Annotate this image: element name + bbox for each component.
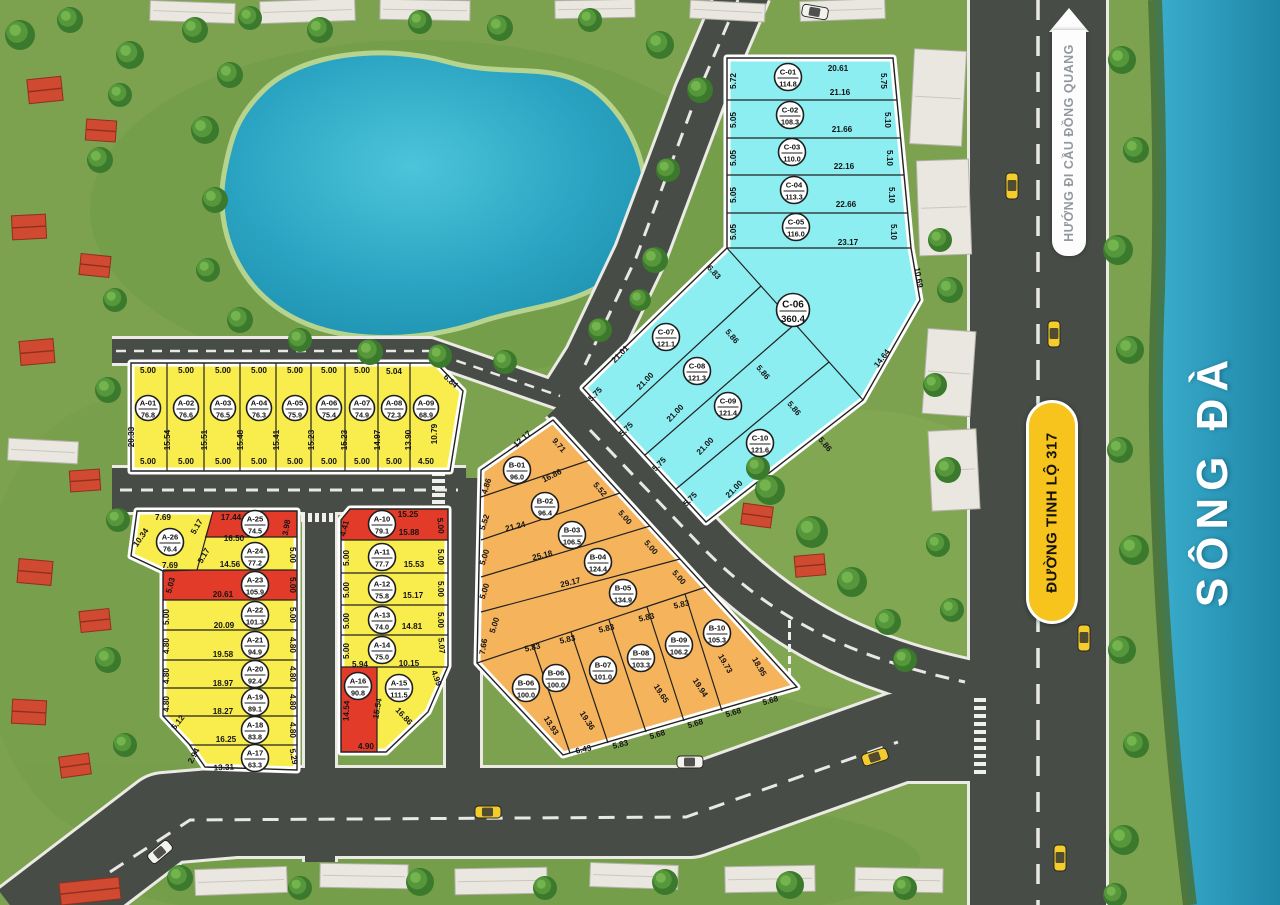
- plot-label-a-23-22[interactable]: A-23105.9: [242, 572, 269, 599]
- car-white: [677, 756, 703, 768]
- crosswalk-bar: [974, 706, 986, 710]
- plot-id-text: A-24: [247, 547, 264, 556]
- plot-label-a-22-21[interactable]: A-22101.3: [242, 602, 269, 629]
- plot-label-a-16-15[interactable]: A-1690.8: [345, 673, 372, 700]
- dimension-label: 21.66: [832, 125, 853, 134]
- dimension-label: 18.27: [213, 707, 234, 716]
- plot-label-a-17-16[interactable]: A-1763.3: [242, 745, 269, 772]
- tree: [656, 158, 680, 182]
- dimension-label: 15.23: [307, 429, 316, 450]
- tree: [113, 733, 137, 757]
- plot-area-text: 113.3: [785, 193, 803, 202]
- crosswalk-bar: [432, 493, 445, 497]
- crosswalk-bar: [788, 620, 791, 628]
- plot-label-a-02-1[interactable]: A-0276.6: [174, 396, 199, 421]
- building-white: [922, 328, 976, 416]
- dimension-label: 19.58: [213, 650, 234, 659]
- plot-label-a-21-20[interactable]: A-2194.9: [242, 632, 269, 659]
- plot-id-text: A-19: [247, 693, 263, 702]
- tree: [629, 289, 651, 311]
- house-red-roof: [27, 76, 63, 103]
- car-taxi: [1048, 321, 1060, 347]
- plot-id-text: C-01: [780, 68, 797, 77]
- dimension-label: 5.00: [287, 457, 303, 466]
- dimension-label: 4.80: [288, 722, 297, 738]
- plot-area-text: 77.7: [375, 560, 389, 569]
- car-taxi: [475, 806, 501, 818]
- crosswalk-bar: [974, 698, 986, 702]
- dimension-label: 16.25: [216, 735, 237, 744]
- tree: [95, 647, 121, 673]
- plot-label-c-05-41[interactable]: C-05116.0: [783, 214, 810, 241]
- plot-id-text: A-07: [354, 399, 370, 408]
- plot-label-c-02-38[interactable]: C-02108.3: [777, 102, 804, 129]
- tree: [103, 288, 127, 312]
- dimension-label: 5.00: [342, 643, 351, 659]
- lake: [222, 53, 646, 338]
- tree: [167, 865, 193, 891]
- dimension-label: 13.31: [213, 762, 234, 772]
- plot-id-text: B-09: [671, 636, 687, 645]
- tree: [217, 62, 243, 88]
- dimension-label: 5.05: [729, 224, 738, 240]
- plot-area-text: 63.3: [248, 761, 262, 770]
- tree: [935, 457, 961, 483]
- plot-area-text: 105.3: [708, 636, 726, 645]
- plot-label-a-24-23[interactable]: A-2477.2: [242, 543, 269, 570]
- plot-label-b-01-26[interactable]: B-0196.0: [504, 457, 531, 484]
- tree: [87, 147, 113, 173]
- dimension-label: 16.50: [224, 534, 245, 543]
- dimension-label: 20.33: [127, 426, 136, 447]
- plot-area-text: 360.4: [781, 314, 805, 325]
- plot-id-text: A-03: [215, 399, 231, 408]
- dimension-label: 5.75: [879, 73, 888, 89]
- plot-id-text: A-18: [247, 721, 263, 730]
- crosswalk-bar: [974, 714, 986, 718]
- plot-label-c-04-40[interactable]: C-04113.3: [781, 177, 808, 204]
- dimension-label: 20.61: [213, 590, 234, 599]
- plot-label-c-01-37[interactable]: C-01114.8: [775, 64, 802, 91]
- crosswalk-bar: [329, 513, 333, 522]
- plot-area-text: 121.1: [657, 340, 675, 349]
- tree: [493, 350, 517, 374]
- road-name-sign: ĐƯỜNG TINH LỘ 317: [1026, 400, 1078, 624]
- tree: [893, 876, 917, 900]
- plot-label-a-20-19[interactable]: A-2092.4: [242, 661, 269, 688]
- plot-label-b-04-29[interactable]: B-04124.4: [585, 549, 612, 576]
- plot-area-text: 89.1: [248, 705, 262, 714]
- tree: [428, 344, 452, 368]
- plot-id-text: A-22: [247, 606, 263, 615]
- crosswalk-bar: [432, 486, 445, 490]
- plot-id-text: B-08: [633, 649, 649, 658]
- dimension-label: 5.10: [883, 112, 892, 128]
- house-red-roof: [794, 554, 826, 578]
- plot-area-text: 96.4: [538, 509, 552, 518]
- tree: [926, 533, 950, 557]
- dimension-label: 15.41: [272, 429, 281, 450]
- plot-label-a-10-9[interactable]: A-1079.1: [369, 511, 396, 538]
- plot-area-text: 96.0: [510, 473, 524, 482]
- plot-area-text: 116.0: [787, 230, 805, 239]
- house-red-roof: [19, 339, 55, 366]
- plot-label-b-02-27[interactable]: B-0296.4: [532, 493, 559, 520]
- plot-label-c-08-44[interactable]: C-08121.3: [684, 358, 711, 385]
- dimension-label: 22.16: [834, 162, 855, 171]
- crosswalk-bar: [308, 513, 312, 522]
- tree: [893, 648, 917, 672]
- dimension-label: 5.00: [354, 366, 370, 375]
- plot-id-text: B-10: [709, 624, 725, 633]
- plot-id-text: A-09: [418, 399, 434, 408]
- tree: [95, 377, 121, 403]
- tree: [307, 17, 333, 43]
- dimension-label: 13.90: [404, 429, 413, 450]
- plot-label-a-06-5[interactable]: A-0675.4: [317, 396, 342, 421]
- plot-label-a-13-12[interactable]: A-1374.0: [369, 607, 396, 634]
- house-red-roof: [741, 503, 774, 528]
- plot-label-c-03-39[interactable]: C-03110.0: [779, 139, 806, 166]
- tree: [196, 258, 220, 282]
- car-taxi: [1078, 625, 1090, 651]
- dimension-label: 5.00: [251, 366, 267, 375]
- house-red-roof: [79, 608, 111, 632]
- tree: [487, 15, 513, 41]
- plot-label-a-26-25[interactable]: A-2676.4: [157, 529, 184, 556]
- house-red-roof: [69, 469, 100, 492]
- tree: [1108, 46, 1136, 74]
- tree: [227, 307, 253, 333]
- arrow-up-icon: [1049, 8, 1089, 32]
- tree: [1123, 137, 1149, 163]
- car-taxi: [1054, 845, 1066, 871]
- plot-area-text: 100.0: [517, 691, 535, 700]
- dimension-label: 5.00: [342, 582, 351, 598]
- plot-id-text: B-04: [590, 553, 607, 562]
- plot-area-text: 111.5: [390, 691, 407, 700]
- direction-sign-body: HƯỚNG ĐI CẦU ĐỒNG QUANG: [1052, 30, 1086, 256]
- dimension-label: 5.00: [386, 457, 402, 466]
- dimension-label: 20.61: [828, 64, 849, 73]
- plot-id-text: A-21: [247, 636, 264, 645]
- dimension-label: 20.09: [214, 621, 235, 630]
- dimension-label: 5.00: [435, 517, 445, 534]
- dimension-label: 4.80: [288, 637, 297, 653]
- crosswalk-bar: [788, 632, 791, 640]
- dimension-label: 5.00: [288, 547, 297, 563]
- plot-label-a-03-2[interactable]: A-0376.5: [211, 396, 236, 421]
- building-white: [195, 866, 288, 895]
- building-white: [7, 438, 78, 464]
- dimension-label: 5.72: [729, 73, 738, 89]
- plot-label-b-07-33[interactable]: B-07101.0: [590, 657, 617, 684]
- building-white: [690, 0, 766, 22]
- plot-area-text: 114.8: [779, 80, 797, 89]
- dimension-label: 15.54: [163, 429, 172, 450]
- plot-id-text: C-04: [786, 181, 803, 190]
- plot-area-text: 103.3: [632, 661, 650, 670]
- crosswalk-bar: [432, 500, 445, 504]
- plot-area-text: 124.4: [589, 565, 607, 574]
- dimension-label: 5.00: [140, 366, 156, 375]
- plot-id-text: C-10: [752, 434, 768, 443]
- tree: [875, 609, 901, 635]
- crosswalk-bar: [974, 754, 986, 758]
- crosswalk-bar: [322, 513, 326, 522]
- dimension-label: 5.00: [342, 613, 351, 629]
- plot-area-text: 121.4: [719, 409, 737, 418]
- plot-id-text: A-10: [374, 515, 390, 524]
- tree: [288, 328, 312, 352]
- crosswalk-bar: [974, 730, 986, 734]
- tree: [182, 17, 208, 43]
- dimension-label: 5.10: [889, 224, 898, 240]
- car-taxi: [1006, 173, 1018, 199]
- dimension-label: 14.81: [402, 622, 423, 631]
- plot-area-text: 76.4: [163, 545, 177, 554]
- dimension-label: 10.79: [430, 423, 439, 444]
- master-plan-map: A-0176.8A-0276.6A-0376.5A-0476.3A-0575.9…: [0, 0, 1280, 905]
- dimension-label: 15.53: [404, 560, 425, 569]
- plot-label-a-18-17[interactable]: A-1883.8: [242, 717, 269, 744]
- map-canvas: A-0176.8A-0276.6A-0376.5A-0476.3A-0575.9…: [0, 0, 1280, 905]
- plot-label-b-08-34[interactable]: B-08103.3: [628, 645, 655, 672]
- plot-id-text: C-02: [782, 106, 798, 115]
- plot-id-text: B-02: [537, 497, 553, 506]
- tree: [238, 6, 262, 30]
- plot-label-c-10-46[interactable]: C-10121.6: [747, 430, 774, 457]
- dimension-label: 15.88: [399, 528, 420, 537]
- tree: [578, 8, 602, 32]
- plot-area-text: 90.8: [351, 689, 365, 698]
- plot-id-text: A-02: [178, 399, 194, 408]
- crosswalk-bar: [974, 770, 986, 774]
- plot-id-text: A-11: [374, 548, 391, 557]
- crosswalk-bar: [974, 722, 986, 726]
- tree: [57, 7, 83, 33]
- plot-area-text: 74.5: [248, 527, 262, 536]
- dimension-label: 4.80: [288, 694, 297, 710]
- direction-sign-label: HƯỚNG ĐI CẦU ĐỒNG QUANG: [1062, 44, 1076, 242]
- plot-area-text: 75.8: [375, 592, 389, 601]
- plot-label-c-06-42[interactable]: C-06360.4: [777, 294, 810, 327]
- tree: [776, 871, 804, 899]
- plot-area-text: 105.9: [246, 588, 264, 597]
- house-red-roof: [59, 753, 92, 778]
- plot-id-text: A-12: [374, 580, 390, 589]
- plot-area-text: 121.6: [751, 446, 769, 455]
- tree: [1109, 825, 1139, 855]
- plot-id-text: A-05: [287, 399, 304, 408]
- dimension-label: 15.51: [200, 429, 209, 450]
- dimension-label: 14.54: [341, 700, 351, 721]
- plot-label-a-11-10[interactable]: A-1177.7: [369, 544, 396, 571]
- dimension-label: 10.15: [399, 659, 420, 668]
- plot-area-text: 75.9: [288, 411, 302, 420]
- tree: [746, 456, 770, 480]
- plot-area-text: 100.0: [547, 681, 565, 690]
- tree: [1116, 336, 1144, 364]
- dimension-label: 5.10: [885, 150, 894, 166]
- tree: [533, 876, 557, 900]
- tree: [408, 10, 432, 34]
- direction-sign: HƯỚNG ĐI CẦU ĐỒNG QUANG: [1052, 8, 1086, 258]
- tree: [116, 41, 144, 69]
- plot-id-text: C-06: [782, 300, 804, 311]
- plot-area-text: 134.9: [614, 596, 632, 605]
- plot-area-text: 74.9: [355, 411, 369, 420]
- dimension-label: 5.00: [215, 457, 231, 466]
- crosswalk-bar: [974, 762, 986, 766]
- plot-label-a-14-13[interactable]: A-1475.0: [369, 637, 396, 664]
- dimension-label: 17.44: [221, 513, 242, 522]
- plot-id-text: A-08: [386, 399, 402, 408]
- plot-area-text: 75.4: [322, 411, 336, 420]
- plot-id-text: C-09: [720, 397, 736, 406]
- plot-area-text: 106.2: [670, 648, 688, 657]
- plot-label-a-12-11[interactable]: A-1275.8: [369, 576, 396, 603]
- plot-label-a-08-7[interactable]: A-0872.3: [382, 396, 407, 421]
- plot-label-a-07-6[interactable]: A-0774.9: [350, 396, 375, 421]
- plot-label-a-19-18[interactable]: A-1989.1: [242, 689, 269, 716]
- dimension-label: 5.07: [436, 637, 446, 654]
- plot-area-text: 94.9: [248, 648, 262, 657]
- tree: [687, 77, 713, 103]
- plot-label-c-09-45[interactable]: C-09121.4: [715, 393, 742, 420]
- plot-label-a-01-0[interactable]: A-0176.8: [136, 396, 161, 421]
- plot-label-c-07-43[interactable]: C-07121.1: [653, 324, 680, 351]
- dimension-label: 22.66: [836, 200, 857, 209]
- tree: [837, 567, 867, 597]
- plot-label-b-09-35[interactable]: B-09106.2: [666, 632, 693, 659]
- tree: [796, 516, 828, 548]
- plot-label-b-03-28[interactable]: B-03106.5: [559, 522, 586, 549]
- dimension-label: 5.00: [287, 366, 303, 375]
- dimension-label: 5.94: [352, 660, 368, 669]
- tree: [1123, 732, 1149, 758]
- dimension-label: 15.17: [403, 591, 424, 600]
- building-white: [320, 863, 408, 889]
- plot-id-text: B-06: [518, 679, 534, 688]
- dimension-label: 5.00: [140, 457, 156, 466]
- plot-id-text: A-14: [374, 641, 391, 650]
- dimension-label: 15.48: [236, 429, 245, 450]
- plot-id-text: B-07: [595, 661, 611, 670]
- dimension-label: 5.00: [342, 550, 351, 566]
- tree: [646, 31, 674, 59]
- tree: [406, 868, 434, 896]
- tree: [1108, 636, 1136, 664]
- plot-label-b-05-30[interactable]: B-05134.9: [610, 580, 637, 607]
- plot-area-text: 68.9: [419, 411, 433, 420]
- house-red-roof: [11, 699, 46, 725]
- plot-area-text: 101.3: [246, 618, 264, 627]
- plot-label-b-06-31[interactable]: B-06100.0: [513, 675, 540, 702]
- tree: [106, 508, 130, 532]
- house-red-roof: [79, 253, 111, 277]
- plot-id-text: A-25: [247, 515, 264, 524]
- plot-id-text: B-06: [548, 669, 564, 678]
- crosswalk-bar: [432, 479, 445, 483]
- plot-label-a-15-14[interactable]: A-15111.5: [386, 675, 413, 702]
- dimension-label: 14.56: [220, 560, 241, 569]
- dimension-label: 5.00: [178, 366, 194, 375]
- plot-label-a-04-3[interactable]: A-0476.3: [247, 396, 272, 421]
- dimension-label: 5.00: [251, 457, 267, 466]
- plot-id-text: C-07: [658, 328, 674, 337]
- dimension-label: 7.69: [155, 513, 171, 522]
- plot-area-text: 76.8: [141, 411, 155, 420]
- dimension-label: 5.00: [288, 607, 297, 623]
- plot-area-text: 74.0: [375, 623, 389, 632]
- tree: [1107, 437, 1133, 463]
- plot-id-text: C-08: [689, 362, 705, 371]
- dimension-label: 21.16: [830, 88, 851, 97]
- dimension-label: 5.10: [887, 187, 896, 203]
- plot-id-text: B-01: [509, 461, 526, 470]
- dimension-label: 18.97: [213, 679, 234, 688]
- plot-id-text: A-16: [350, 677, 366, 686]
- tree: [923, 373, 947, 397]
- plot-label-b-06-32[interactable]: B-06100.0: [543, 665, 570, 692]
- road-name-label: ĐƯỜNG TINH LỘ 317: [1044, 432, 1061, 592]
- dimension-label: 23.17: [838, 238, 859, 247]
- crosswalk-bar: [788, 656, 791, 664]
- dimension-label: 5.04: [386, 367, 402, 376]
- plot-area-text: 76.6: [179, 411, 193, 420]
- plot-area-text: 79.1: [375, 527, 389, 536]
- tree: [108, 83, 132, 107]
- plot-id-text: A-06: [321, 399, 337, 408]
- crosswalk-bar: [788, 644, 791, 652]
- dimension-label: 4.80: [162, 638, 171, 654]
- plot-label-a-09-8[interactable]: A-0968.9: [414, 396, 439, 421]
- dimension-label: 4.80: [288, 666, 297, 682]
- plot-id-text: A-04: [251, 399, 268, 408]
- tree: [652, 869, 678, 895]
- plot-area-text: 77.2: [248, 559, 262, 568]
- tree: [202, 187, 228, 213]
- plot-area-text: 72.3: [387, 411, 401, 420]
- dimension-label: 5.00: [162, 609, 171, 625]
- plot-area-text: 92.4: [248, 677, 262, 686]
- plot-id-text: A-23: [247, 576, 263, 585]
- plot-id-text: A-17: [247, 749, 263, 758]
- dimension-label: 5.00: [288, 577, 297, 593]
- crosswalk-bar: [315, 513, 319, 522]
- plot-label-a-25-24[interactable]: A-2574.5: [242, 511, 269, 538]
- dimension-label: 5.00: [178, 457, 194, 466]
- building-white: [260, 0, 356, 24]
- plot-label-b-10-36[interactable]: B-10105.3: [704, 620, 731, 647]
- tree: [642, 247, 668, 273]
- tree: [288, 876, 312, 900]
- plot-id-text: A-15: [391, 679, 408, 688]
- tree: [1119, 535, 1149, 565]
- dimension-label: 4.80: [162, 668, 171, 684]
- house-red-roof: [85, 119, 116, 142]
- tree: [937, 277, 963, 303]
- tree: [928, 228, 952, 252]
- plot-label-a-05-4[interactable]: A-0575.9: [283, 396, 308, 421]
- plot-area-text: 108.3: [781, 118, 799, 127]
- crosswalk-bar: [301, 513, 305, 522]
- plot-id-text: A-26: [162, 533, 178, 542]
- dimension-label: 5.05: [729, 150, 738, 166]
- dimension-label: 5.00: [354, 457, 370, 466]
- dimension-label: 5.00: [321, 457, 337, 466]
